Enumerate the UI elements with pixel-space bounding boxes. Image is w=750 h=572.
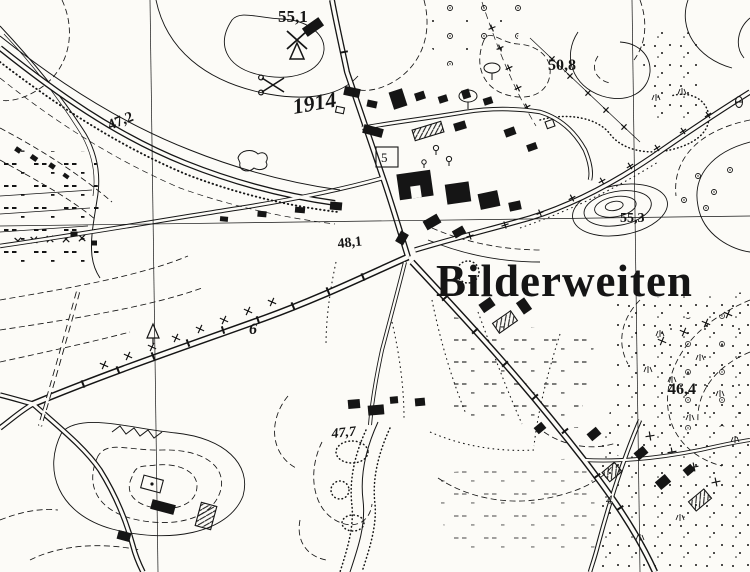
spot-height-label-55-3: 55,3 <box>620 211 645 226</box>
spot-height-label-47-7: 47,7 <box>330 424 358 442</box>
building <box>295 207 305 214</box>
marsh-dots-top-right <box>640 28 706 128</box>
building <box>71 232 78 237</box>
building <box>330 201 343 210</box>
building <box>348 399 361 409</box>
building <box>368 404 385 415</box>
building <box>415 398 426 407</box>
building <box>257 211 266 218</box>
parcel-number-label-5: 5 <box>381 150 388 165</box>
building <box>390 396 399 404</box>
spot-height-label-48-1: 48,1 <box>337 234 363 251</box>
parcel-number-label-4: 4 <box>606 492 613 507</box>
spot-height-label-50-8: 50,8 <box>548 57 576 74</box>
building-courtyard <box>410 185 422 198</box>
meadow-pattern-south <box>436 456 606 556</box>
building <box>91 241 97 246</box>
building <box>220 216 228 222</box>
town-name-label: Bilderweiten <box>436 256 693 306</box>
spot-height-label-55-1: 55,1 <box>278 7 308 26</box>
map-canvas: 55,1 1914 47,2 50,8 55,3 48,1 46,4 47,7 … <box>0 0 750 572</box>
grass-pattern-southeast <box>660 312 750 432</box>
topographic-map: 55,1 1914 47,2 50,8 55,3 48,1 46,4 47,7 … <box>0 0 750 572</box>
building-dot <box>150 482 153 485</box>
parcel-number-label-6: 6 <box>249 321 257 338</box>
spot-height-label-46-4: 46,4 <box>668 381 696 398</box>
building <box>445 181 472 204</box>
